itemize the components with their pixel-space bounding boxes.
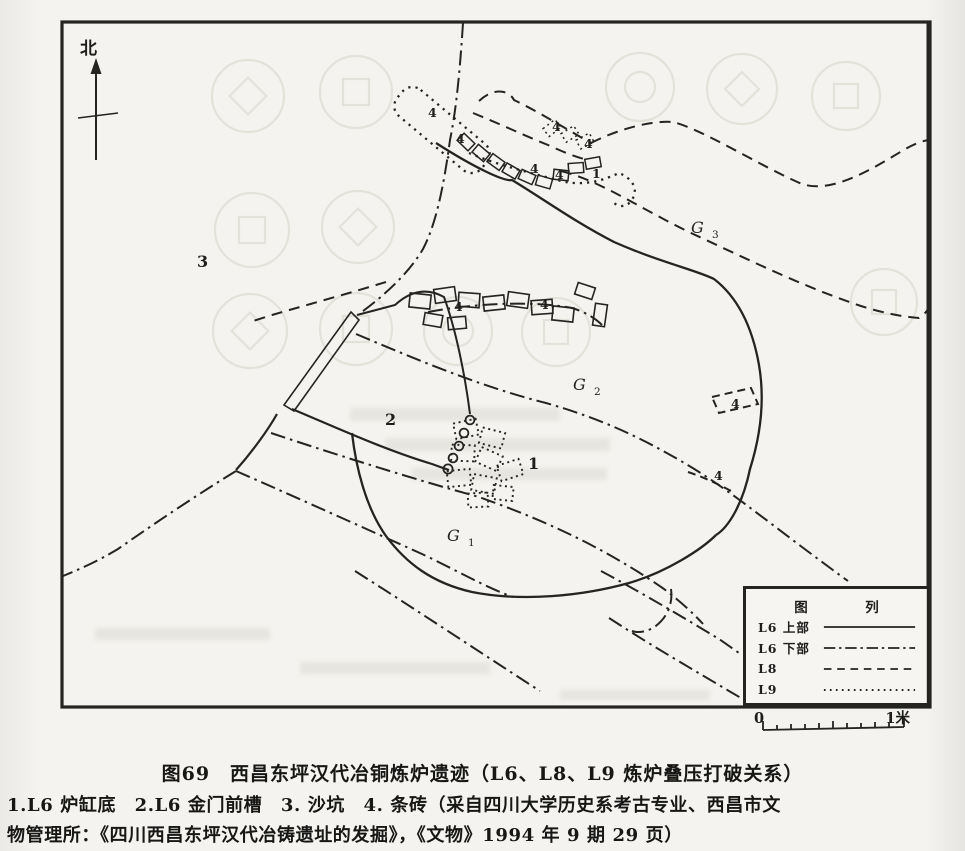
map-number-label: 4: [456, 131, 465, 146]
map-number-label: 4: [428, 105, 437, 120]
legend-sample-dashed: [822, 665, 917, 673]
legend-label: L8: [758, 661, 822, 676]
l6-upper-solid-outlines: [236, 143, 762, 597]
figure-caption-key: 1.L6 炉缸底 2.L6 金门前槽 3. 沙坑 4. 条砖（采自四川大学历史系…: [7, 791, 959, 817]
l8-dashed-lines: [253, 91, 929, 492]
legend-sample-dashdot: [822, 644, 917, 652]
legend-row-l6-upper: L6 上部: [746, 616, 927, 637]
map-number-label: 4: [540, 297, 549, 312]
legend-label: L9: [758, 682, 822, 697]
north-label: 北: [80, 34, 97, 59]
legend-sample-dotted: [822, 686, 917, 694]
ditch-label-letter: G: [447, 526, 460, 545]
legend-label: L6 下部: [758, 638, 822, 657]
legend-row-l6-lower: L6 下部: [746, 637, 927, 658]
legend-title: 图 列: [746, 596, 927, 616]
central-cluster-bricks: [447, 419, 524, 508]
map-number-label: 3: [197, 252, 208, 271]
scale-bar: 0 1米: [748, 706, 918, 742]
map-number-label: 4: [584, 136, 593, 151]
figure-caption-source: 物管理所：《四川西昌东坪汉代冶铸遗址的发掘》，《文物》1994 年 9 期 29…: [7, 821, 959, 847]
map-number-label: 4: [454, 299, 463, 314]
legend-sample-solid: [822, 623, 917, 631]
l6-lower-dashdot-lines: [63, 23, 848, 698]
figure-caption-title: 图69 西昌东坪汉代冶铜炼炉遗迹（L6、L8、L9 炼炉叠压打破关系）: [0, 759, 965, 786]
ditch-label-index: 1: [468, 537, 475, 549]
map-number-label: 4: [555, 167, 564, 182]
scale-end-value: 1米: [885, 707, 910, 728]
legend-label: L6 上部: [758, 617, 822, 636]
ditch-label-index: 2: [594, 386, 601, 398]
map-number-label: 1: [528, 454, 539, 473]
map-number-label: 2: [385, 410, 396, 429]
map-number-label: 4: [731, 396, 740, 411]
map-number-label: 1: [592, 166, 601, 181]
north-arrow-icon: [78, 58, 118, 160]
legend-row-l9: L9: [746, 679, 927, 700]
legend-row-l8: L8: [746, 658, 927, 679]
l9-dotted-lines: [389, 82, 635, 206]
map-number-label: 4: [530, 161, 539, 176]
map-number-label: 4: [714, 468, 723, 483]
ditch-label-index: 3: [712, 229, 719, 241]
ditch-label-letter: G: [691, 218, 704, 237]
ditch-label-letter: G: [573, 375, 586, 394]
scale-start-value: 0: [754, 710, 764, 727]
legend-box: 图 列 L6 上部 L6 下部 L8 L9: [743, 586, 930, 706]
map-number-label: 4: [552, 119, 561, 134]
scanned-page: 44444414444321 G1G2G3: [0, 0, 965, 851]
